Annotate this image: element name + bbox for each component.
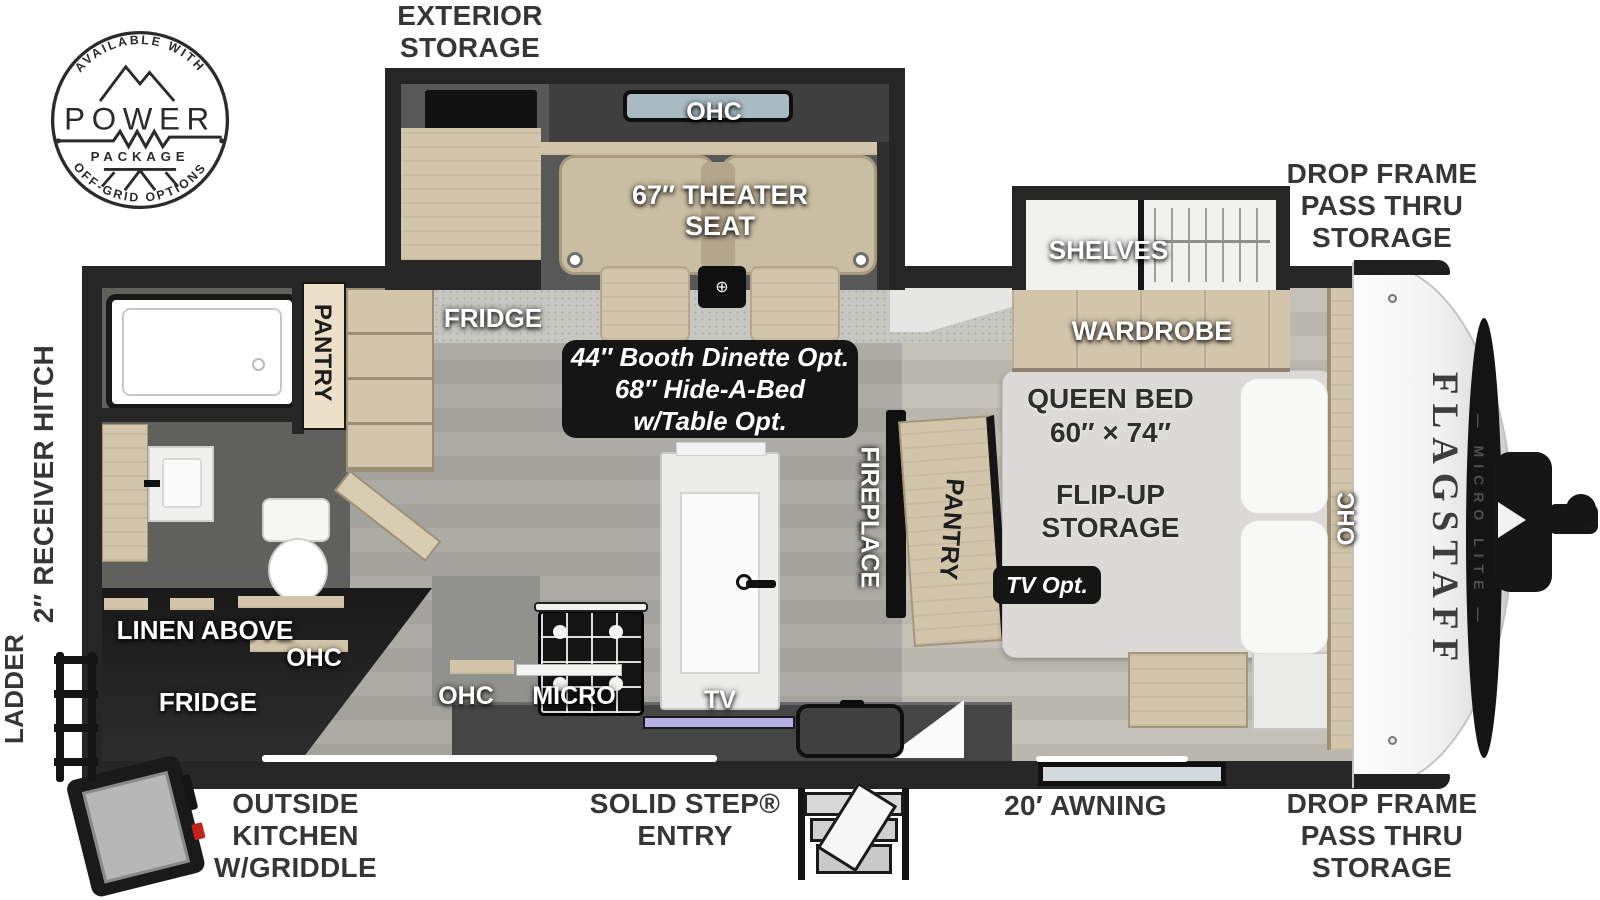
label-bedside-ohc: OHC <box>1333 479 1361 559</box>
burner-2 <box>609 625 623 639</box>
awning-rail-left <box>262 755 717 762</box>
badge-dot-right <box>219 138 224 143</box>
tv-option-callout: TV Opt. <box>993 566 1101 604</box>
hitch-jack-knob <box>1566 494 1596 524</box>
bedroom-window <box>1038 762 1226 786</box>
ladder-rung-1 <box>54 656 98 664</box>
nose-trim-bottom <box>1354 774 1450 789</box>
entry-door-panel <box>660 452 780 710</box>
kitchen-sink <box>796 704 904 758</box>
floorplan-canvas: AVAILABLE WITH OFF-GRID OPTIONS POWER PA… <box>0 0 1600 900</box>
badge-bottom-arc-text: OFF-GRID OPTIONS <box>71 160 210 205</box>
slide-right-wall <box>877 142 889 290</box>
entry-door-top <box>676 442 766 456</box>
nightstand <box>1252 652 1336 730</box>
mountain-icon <box>100 67 174 101</box>
cupholder-left <box>567 252 583 268</box>
shower-tub-rim <box>122 308 282 396</box>
label-queen-bed: QUEEN BED <box>993 382 1228 415</box>
tv-on-counter <box>643 716 795 729</box>
kitchen-faucet <box>840 700 864 707</box>
label-ladder: LADDER <box>0 629 30 749</box>
label-receiver-hitch: 2″ RECEIVER HITCH <box>28 334 60 634</box>
label-outside-kitchen: OUTSIDE KITCHEN W/GRIDDLE <box>168 788 423 885</box>
label-solid-step-entry: SOLID STEP® ENTRY <box>560 788 810 852</box>
theater-footrest-left <box>600 266 690 342</box>
pillow-top <box>1240 378 1328 514</box>
label-drop-frame-top: DROP FRAME PASS THRU STORAGE <box>1268 158 1496 255</box>
entry-steps <box>798 788 910 883</box>
pillow-bottom <box>1240 520 1328 654</box>
brand-series: — MICRO LITE — <box>1471 414 1487 629</box>
rear-ladder <box>54 644 100 790</box>
shower-drain <box>252 358 265 371</box>
badge-subtitle: PACKAGE <box>91 149 190 164</box>
brand-name: FLAGSTAFF <box>1423 372 1466 670</box>
badge-top-arc-text: AVAILABLE WITH <box>72 33 208 75</box>
theater-footrest-right <box>750 266 840 342</box>
bath-faucet <box>144 480 160 487</box>
rear-shelf-1 <box>104 598 148 610</box>
label-kitchen-ohc: OHC <box>424 682 508 711</box>
label-slide-fridge: FRIDGE <box>428 304 558 334</box>
bath-sink-counter <box>148 446 214 522</box>
cupholder-right <box>853 252 869 268</box>
label-shelves: SHELVES <box>1026 236 1191 266</box>
label-kitchen-tv: TV <box>690 686 750 715</box>
entry-door-knob <box>736 574 752 590</box>
nose-screw-top <box>1388 294 1397 303</box>
slide-fridge-box <box>401 260 541 290</box>
slide-counter <box>401 128 541 274</box>
kitchen-shelf-white <box>516 664 622 676</box>
ladder-rung-2 <box>54 690 98 698</box>
label-exterior-storage: EXTERIOR STORAGE <box>350 0 590 64</box>
nose-trim-top <box>1354 260 1450 275</box>
bath-sink <box>162 458 202 508</box>
label-drop-frame-bottom: DROP FRAME PASS THRU STORAGE <box>1268 788 1496 885</box>
shower-wall <box>100 408 308 422</box>
badge-title: POWER <box>64 102 216 137</box>
power-package-badge: AVAILABLE WITH OFF-GRID OPTIONS POWER PA… <box>45 25 235 215</box>
label-wardrobe: WARDROBE <box>1038 316 1266 347</box>
brand-block: — MICRO LITE — FLAGSTAFF <box>1412 311 1498 731</box>
theater-slideout <box>385 68 905 290</box>
theater-shelf-rail <box>541 142 889 155</box>
nose-screw-bottom <box>1388 736 1397 745</box>
rear-shelf-2 <box>170 598 214 610</box>
label-flip-up-storage: FLIP-UP STORAGE <box>993 478 1228 544</box>
toilet-bowl <box>268 538 328 602</box>
rear-shelf-3 <box>238 596 344 608</box>
label-queen-bed-size: 60″ × 74″ <box>993 416 1228 449</box>
label-linen-above: LINEN ABOVE <box>100 616 310 646</box>
bed-foot-bench <box>1128 652 1248 728</box>
ladder-rung-3 <box>54 724 98 732</box>
label-theater-ohc: OHC <box>674 98 754 127</box>
range-knob-rail <box>534 602 648 612</box>
bath-vanity-cabinet <box>102 424 148 562</box>
toilet-tank <box>262 498 330 542</box>
kitchen-shelf-wood <box>450 660 514 674</box>
top-wall-mid <box>886 266 1026 288</box>
dinette-option-callout: 44″ Booth Dinette Opt. 68″ Hide-A-Bed w/… <box>562 340 858 438</box>
cupholder-icon: ⊕ <box>715 277 728 297</box>
label-kitchen-micro: MICRO <box>516 682 632 711</box>
label-theater-seat: 67″ THEATER SEAT <box>595 180 845 242</box>
label-rear-ohc: OHC <box>278 644 350 673</box>
label-awning: 20′ AWNING <box>988 790 1183 822</box>
label-rear-fridge: FRIDGE <box>146 688 270 718</box>
theater-console: ⊕ <box>698 266 746 308</box>
badge-dot-left <box>56 138 61 143</box>
slide-appliance <box>425 90 537 130</box>
burner-1 <box>553 625 567 639</box>
ladder-rung-4 <box>54 758 98 766</box>
label-bath-pantry: PANTRY <box>308 293 336 413</box>
top-wall-left <box>82 266 402 288</box>
label-fireplace: FIREPLACE <box>855 435 884 599</box>
hall-pantry-cabinet <box>346 288 434 472</box>
shower-tub <box>106 294 298 410</box>
